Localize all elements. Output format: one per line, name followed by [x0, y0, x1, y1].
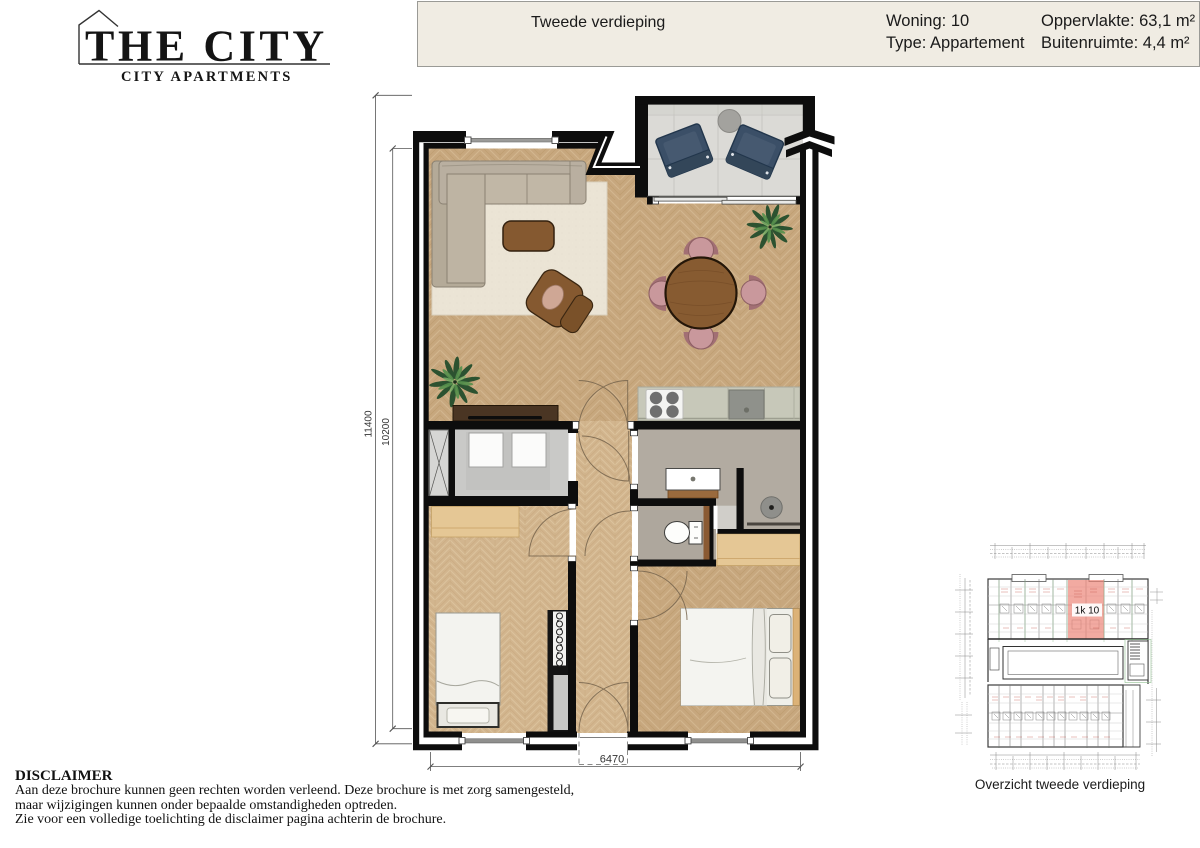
svg-text:10200: 10200	[381, 418, 392, 446]
svg-text:11400: 11400	[364, 410, 375, 438]
svg-text:1k 10: 1k 10	[1075, 606, 1100, 617]
svg-text:6470: 6470	[600, 754, 624, 766]
